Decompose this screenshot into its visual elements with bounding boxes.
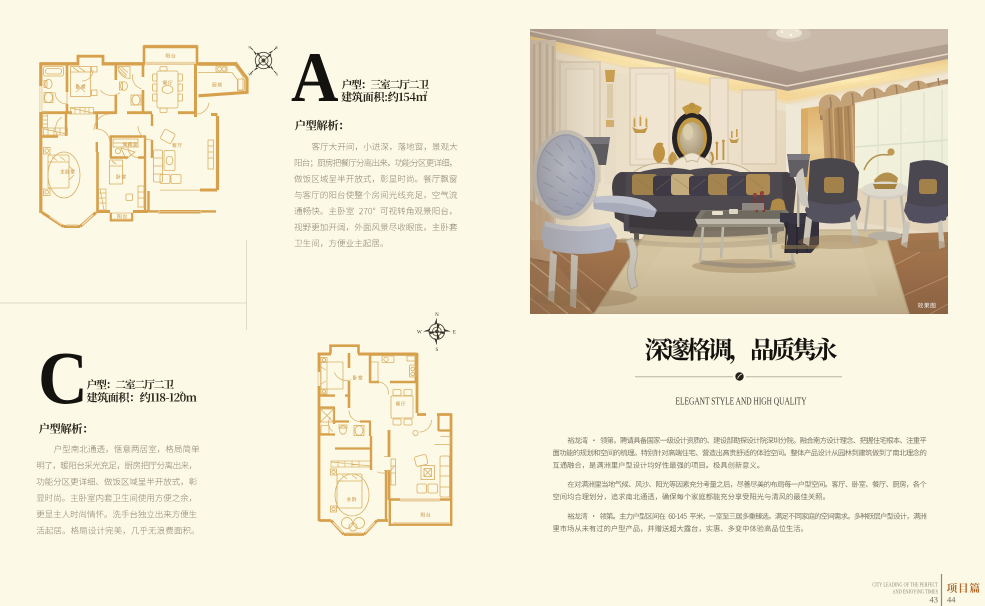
svg-text:A: A [291,38,339,117]
svg-text:C: C [38,337,88,420]
svg-text:W: W [417,331,422,336]
svg-text:CITY LEADING OF THE PERFECT: CITY LEADING OF THE PERFECT [872,582,938,589]
svg-text:N: N [249,46,252,50]
svg-text:43: 43 [930,595,939,605]
svg-text:E: E [453,331,456,336]
svg-text:ELEGANT STYLE AND HIGH QUALITY: ELEGANT STYLE AND HIGH QUALITY [675,395,807,406]
svg-text:S: S [436,348,439,353]
svg-text:N: N [435,313,439,318]
svg-text:W: W [249,73,253,77]
svg-text:44: 44 [947,595,956,605]
